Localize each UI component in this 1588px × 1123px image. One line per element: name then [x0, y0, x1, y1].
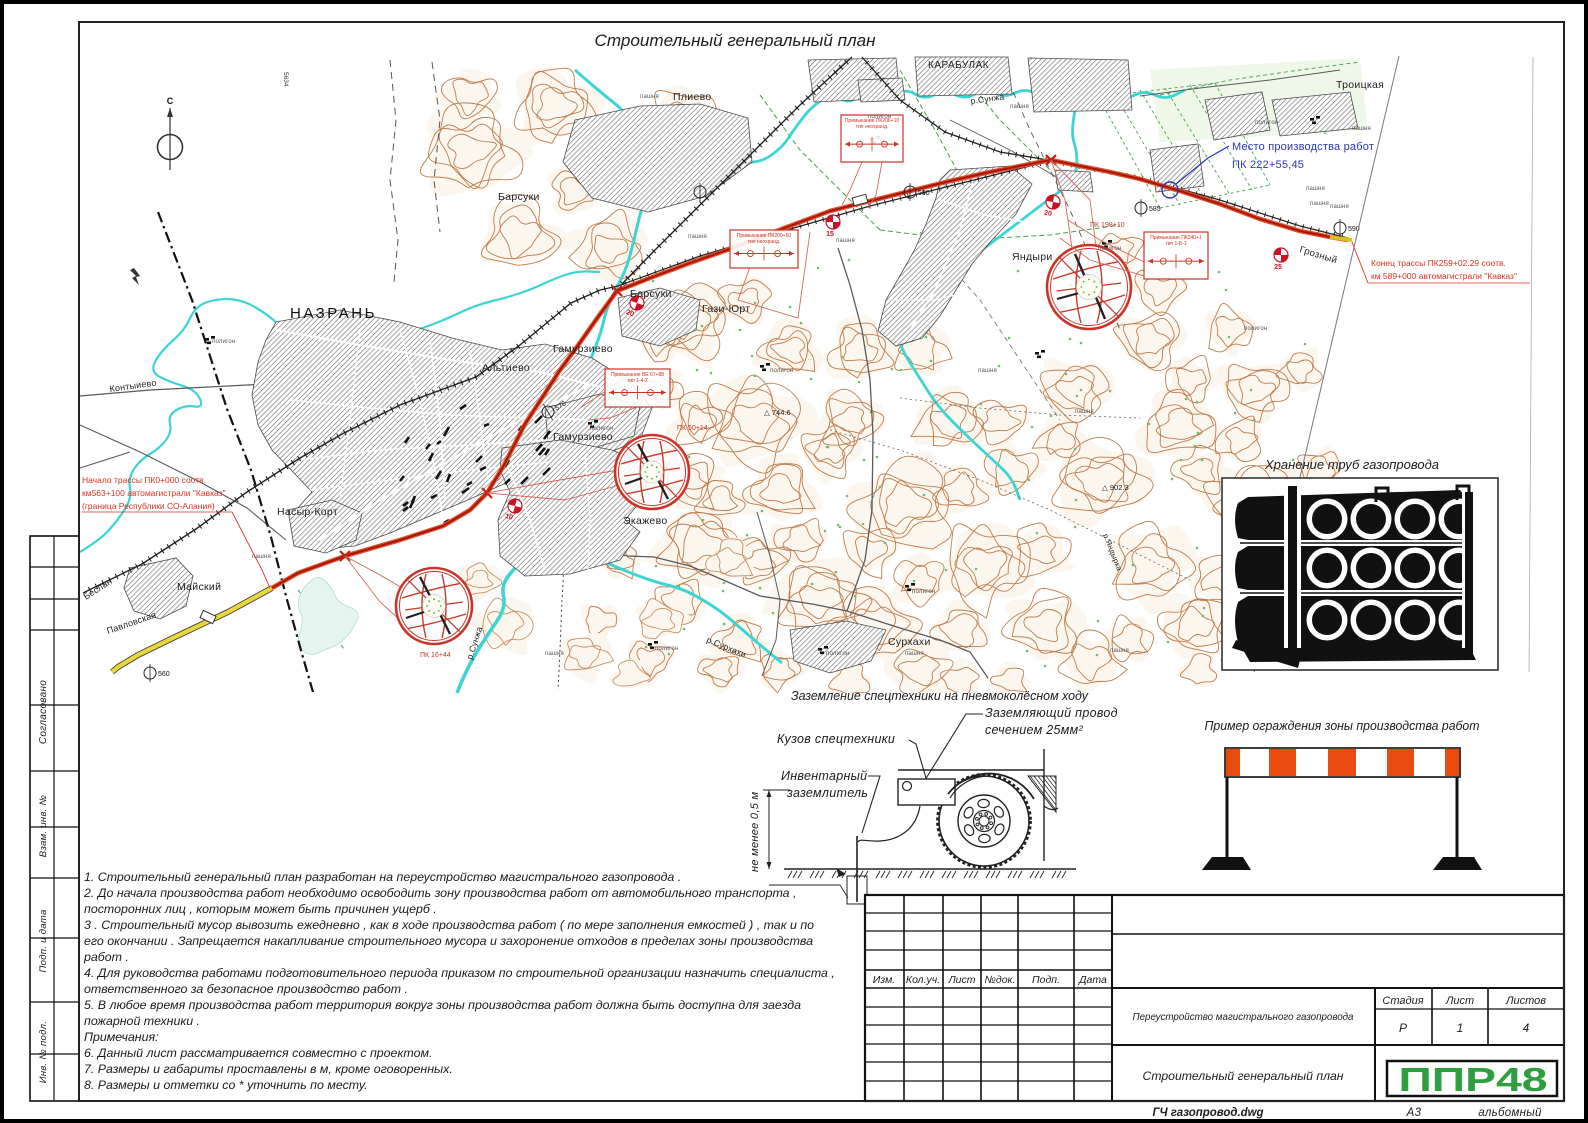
- svg-text:Альтиево: Альтиево: [482, 362, 530, 374]
- svg-text:Взам. инв. №: Взам. инв. №: [38, 795, 49, 857]
- svg-text:ПК 50+14: ПК 50+14: [677, 425, 708, 432]
- svg-text:Барсуки: Барсуки: [630, 288, 672, 300]
- svg-text:ГЧ газопровод.dwg: ГЧ газопровод.dwg: [1153, 1107, 1264, 1119]
- svg-text:Заземление спецтехники на пнев: Заземление спецтехники на пневмоколёсном…: [791, 688, 1089, 703]
- svg-text:7. Размеры и габариты прос: 7. Размеры и габариты проставлены в м, к…: [84, 1062, 453, 1076]
- svg-text:△ 744.6: △ 744.6: [764, 408, 791, 417]
- svg-text:4: 4: [1523, 1021, 1530, 1035]
- svg-text:Подп. и дата: Подп. и дата: [38, 909, 49, 972]
- svg-text:Лист: Лист: [1445, 995, 1474, 1007]
- svg-text:пашня: пашня: [640, 94, 659, 100]
- svg-text:Троицкая: Троицкая: [1336, 79, 1384, 91]
- svg-text:Начало трассы ПК0+000 соотв.: Начало трассы ПК0+000 соотв.: [82, 475, 206, 485]
- svg-text:3 . Строительный мусор выво: 3 . Строительный мусор вывозить ежедневн…: [84, 918, 814, 932]
- svg-text:△ 902.3: △ 902.3: [1102, 483, 1129, 492]
- svg-text:пашня: пашня: [1010, 104, 1029, 110]
- svg-text:Строительный генеральный план: Строительный генеральный план: [595, 32, 876, 50]
- svg-text:Плиево: Плиево: [673, 91, 711, 103]
- svg-text:Изм.: Изм.: [873, 974, 895, 986]
- svg-text:полигон: полигон: [590, 426, 613, 432]
- svg-text:560: 560: [158, 671, 170, 678]
- svg-text:Экажево: Экажево: [623, 515, 667, 527]
- svg-text:ППР48: ППР48: [1399, 1061, 1548, 1098]
- svg-text:580: 580: [918, 190, 930, 197]
- svg-text:Лист: Лист: [947, 974, 975, 986]
- svg-text:км563+100 автомагистрали "Кавк: км563+100 автомагистрали "Кавказ": [82, 488, 226, 498]
- svg-text:Сурхахи: Сурхахи: [888, 636, 931, 648]
- svg-text:тип 1-4-2: тип 1-4-2: [627, 378, 648, 384]
- svg-text:заземлитель: заземлитель: [786, 786, 868, 800]
- svg-text:Яндыри: Яндыри: [1012, 251, 1053, 263]
- svg-text:Майский: Майский: [177, 581, 221, 593]
- svg-text:сечением 25мм²: сечением 25мм²: [985, 723, 1084, 737]
- svg-text:КАРАБУЛАК: КАРАБУЛАК: [928, 60, 989, 71]
- svg-text:альбомный: альбомный: [1478, 1107, 1542, 1119]
- svg-text:Гази-Юрт: Гази-Юрт: [702, 303, 750, 315]
- svg-text:не менее 0,5 м: не менее 0,5 м: [749, 792, 761, 872]
- svg-text:пашня: пашня: [836, 238, 855, 244]
- svg-text:км 589+000 автомагистрали "Кав: км 589+000 автомагистрали "Кавказ": [1371, 271, 1517, 281]
- svg-text:ПК 198+10: ПК 198+10: [1090, 222, 1125, 229]
- svg-text:Хранение труб газопровода: Хранение труб газопровода: [1264, 457, 1439, 472]
- svg-text:Конец трассы ПК259+02.29 соотв: Конец трассы ПК259+02.29 соотв.: [1371, 258, 1506, 268]
- svg-text:ПК 16+44: ПК 16+44: [420, 652, 451, 659]
- svg-text:тип 1-Б-1: тип 1-Б-1: [1165, 241, 1187, 247]
- svg-text:Дата: Дата: [1078, 974, 1107, 986]
- svg-text:Пример ограждения зоны произво: Пример ограждения зоны производства рабо…: [1205, 718, 1480, 733]
- svg-text:пожарной техники .: пожарной техники .: [84, 1014, 200, 1028]
- svg-text:пашня: пашня: [978, 368, 997, 374]
- svg-text:8. Размеры и отметки со *: 8. Размеры и отметки со * уточнить по ме…: [84, 1078, 368, 1092]
- svg-text:полигон: полигон: [1255, 120, 1278, 126]
- svg-text:ПК 222+55,45: ПК 222+55,45: [1232, 159, 1304, 171]
- svg-text:С: С: [167, 96, 174, 106]
- svg-text:пашня: пашня: [545, 651, 564, 657]
- svg-text:пашня: пашня: [688, 234, 707, 240]
- svg-text:тип неохранд.: тип неохранд.: [856, 124, 889, 130]
- svg-text:(граница Республики СО-Алания): (граница Республики СО-Алания): [82, 501, 215, 511]
- svg-text:585: 585: [1149, 206, 1161, 213]
- svg-text:Подп.: Подп.: [1032, 974, 1060, 986]
- svg-text:пашня: пашня: [1110, 648, 1129, 654]
- svg-text:5634: 5634: [282, 72, 289, 87]
- svg-text:№док.: №док.: [985, 974, 1016, 986]
- svg-text:пашня: пашня: [1306, 186, 1325, 192]
- svg-text:Кузов спецтехники: Кузов спецтехники: [777, 732, 895, 746]
- svg-text:Насыр-Корт: Насыр-Корт: [277, 506, 338, 518]
- svg-text:полигон: полигон: [212, 339, 235, 345]
- svg-text:Кол.уч.: Кол.уч.: [906, 974, 940, 986]
- svg-text:пашня: пашня: [1310, 201, 1329, 207]
- svg-text:Барсуки: Барсуки: [498, 191, 540, 203]
- svg-text:ответственного за безопасное: ответственного за безопасное производств…: [84, 982, 408, 996]
- svg-text:Стадия: Стадия: [1382, 995, 1423, 1007]
- svg-text:полигон: полигон: [868, 114, 891, 120]
- svg-text:пашня: пашня: [1075, 409, 1094, 415]
- svg-text:20: 20: [1043, 210, 1052, 218]
- svg-text:полигон: полигон: [826, 651, 849, 657]
- svg-text:посторонних лиц , которым м: посторонних лиц , которым может быть при…: [84, 902, 437, 916]
- svg-text:1. Строительный генеральный: 1. Строительный генеральный план разрабо…: [84, 870, 681, 884]
- svg-text:полигон: полигон: [770, 368, 793, 374]
- svg-text:полигон: полигон: [1244, 326, 1267, 332]
- svg-text:полигон: полигон: [655, 646, 678, 652]
- svg-text:пашня: пашня: [1330, 204, 1349, 210]
- svg-text:1: 1: [1457, 1021, 1464, 1035]
- svg-text:Согласовано: Согласовано: [38, 680, 49, 744]
- svg-text:Место производства работ: Место производства работ: [1232, 141, 1374, 153]
- svg-text:Переустройство магистрального: Переустройство магистрального газопровод…: [1133, 1011, 1354, 1023]
- svg-text:5. В любое время производс: 5. В любое время производства работ терр…: [84, 998, 801, 1012]
- svg-text:полигон: полигон: [912, 589, 935, 595]
- svg-text:Р: Р: [1399, 1021, 1407, 1035]
- svg-text:НАЗРАНЬ: НАЗРАНЬ: [290, 305, 377, 322]
- svg-text:Гамурзиево: Гамурзиево: [553, 431, 613, 443]
- svg-text:Примечания:: Примечания:: [84, 1030, 159, 1044]
- svg-text:его окончании . Запрещается: его окончании . Запрещается накапливание…: [84, 934, 813, 948]
- svg-text:Инвентарный: Инвентарный: [781, 769, 867, 783]
- svg-text:Гамурзиево: Гамурзиево: [553, 343, 613, 355]
- svg-text:25: 25: [1274, 264, 1282, 271]
- svg-text:тип неохранд.: тип неохранд.: [748, 239, 781, 245]
- svg-text:работ .: работ .: [83, 950, 129, 964]
- svg-text:Инв. № подл.: Инв. № подл.: [38, 1021, 49, 1084]
- svg-text:Листов: Листов: [1505, 995, 1546, 1007]
- svg-text:2. До начала производства: 2. До начала производства работ необходи…: [83, 886, 796, 900]
- svg-text:Строительный генеральный план: Строительный генеральный план: [1143, 1069, 1344, 1083]
- svg-text:15: 15: [826, 231, 834, 238]
- svg-text:4. Для руководства работами: 4. Для руководства работами подготовител…: [84, 966, 835, 980]
- svg-text:6. Данный лист рассматривае: 6. Данный лист рассматривается совместно…: [84, 1046, 432, 1060]
- svg-text:Заземляющий провод: Заземляющий провод: [985, 706, 1118, 720]
- svg-text:полигон: полигон: [1098, 246, 1121, 252]
- svg-text:А3: А3: [1406, 1107, 1422, 1119]
- svg-text:пашня: пашня: [905, 651, 924, 657]
- svg-text:пашня: пашня: [1352, 126, 1371, 132]
